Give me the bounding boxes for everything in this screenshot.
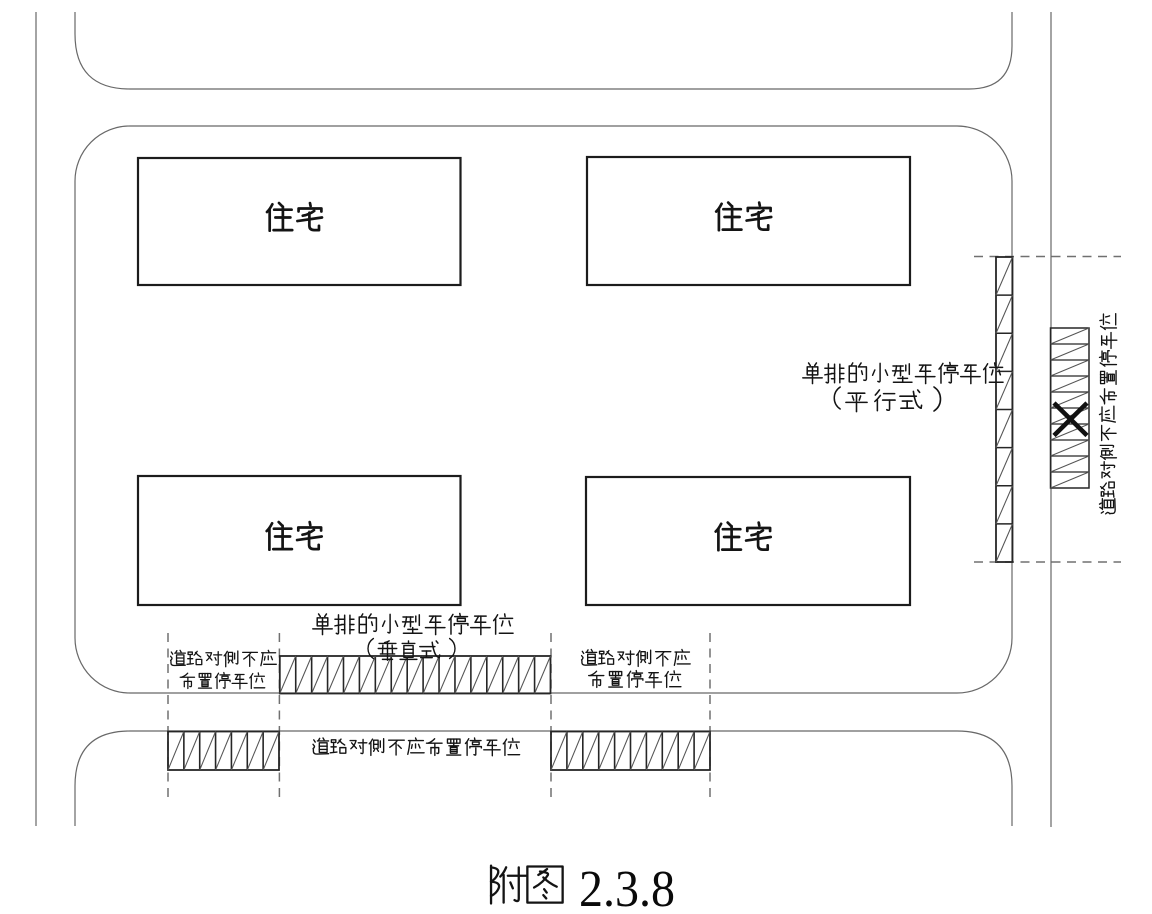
svg-text:2.3.8: 2.3.8 bbox=[579, 861, 675, 914]
